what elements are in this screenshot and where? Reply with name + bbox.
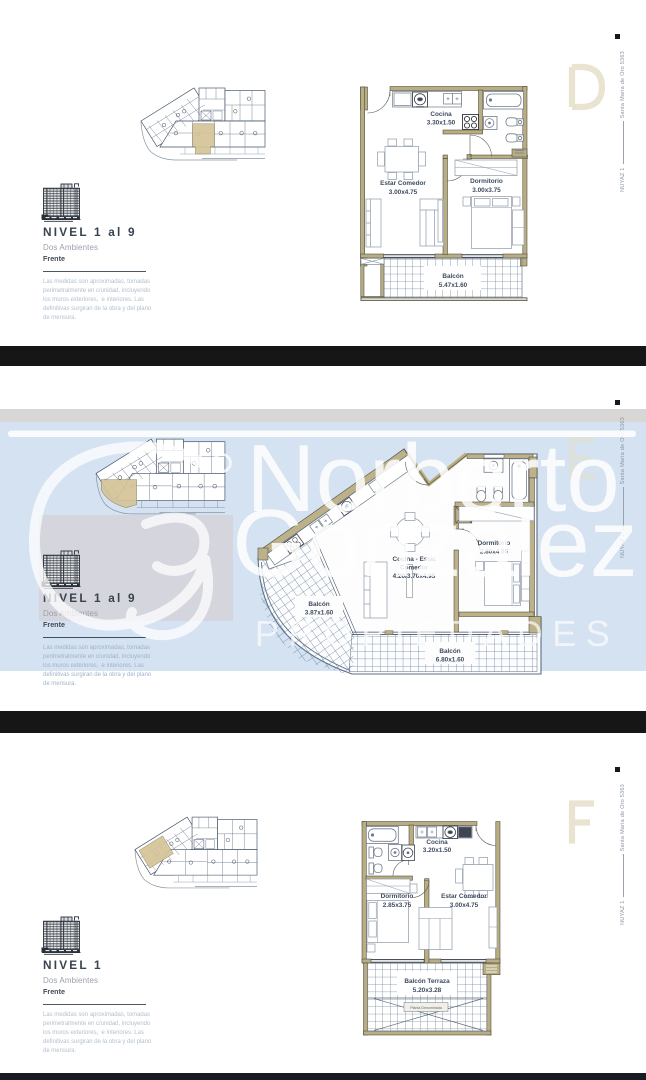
- svg-text:PROPIEDADES: PROPIEDADES: [255, 613, 620, 654]
- svg-text:3.00x4.75: 3.00x4.75: [450, 902, 479, 909]
- svg-text:Planta Denominada: Planta Denominada: [410, 1006, 442, 1010]
- svg-text:2.85x3.75: 2.85x3.75: [383, 902, 412, 909]
- svg-text:3.00x4.75: 3.00x4.75: [389, 189, 418, 196]
- svg-text:Balcón: Balcón: [442, 273, 463, 280]
- svg-text:Dormitorio: Dormitorio: [470, 178, 503, 185]
- svg-text:González: González: [232, 490, 638, 597]
- svg-text:Estar Comedor: Estar Comedor: [441, 893, 487, 900]
- svg-text:5.47x1.60: 5.47x1.60: [439, 282, 468, 289]
- svg-text:Balcón Terraza: Balcón Terraza: [404, 978, 450, 985]
- svg-text:3.30x1.50: 3.30x1.50: [427, 120, 456, 127]
- svg-text:Cocina: Cocina: [426, 839, 448, 846]
- svg-text:3.00x3.75: 3.00x3.75: [472, 187, 501, 194]
- svg-text:Dormitorio: Dormitorio: [381, 893, 414, 900]
- svg-text:3.20x1.50: 3.20x1.50: [423, 847, 452, 854]
- svg-text:Estar Comedor: Estar Comedor: [380, 180, 426, 187]
- svg-text:5.20x3.28: 5.20x3.28: [413, 987, 442, 994]
- svg-text:Cocina: Cocina: [430, 111, 452, 118]
